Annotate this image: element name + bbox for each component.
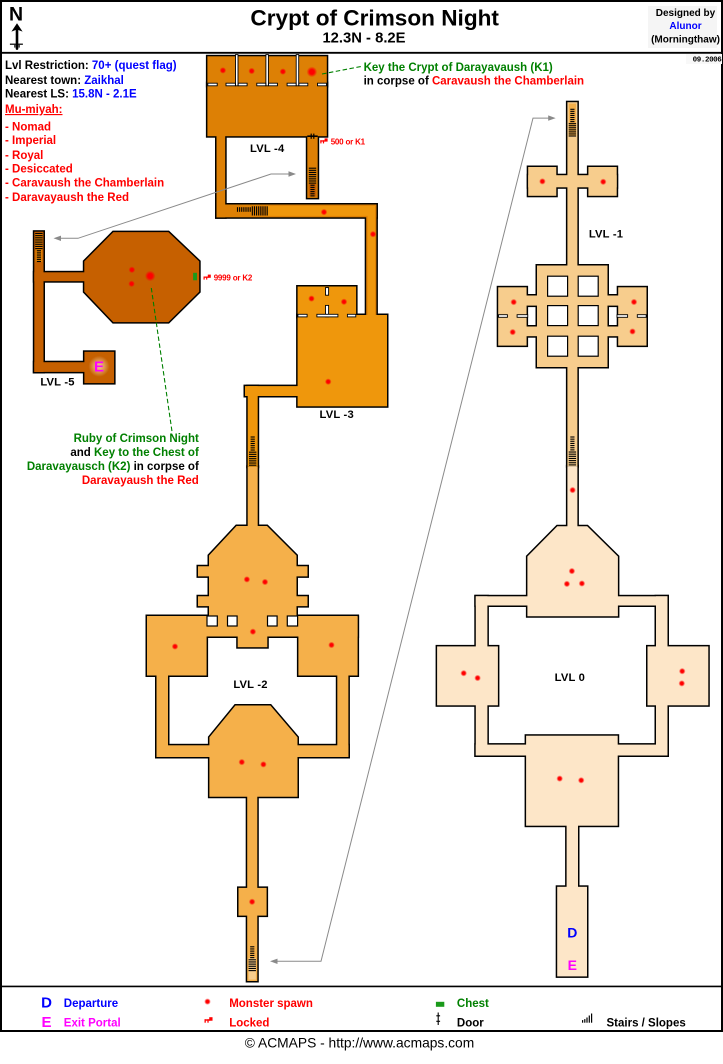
svg-text:- Desiccated: - Desiccated [5, 164, 73, 176]
svg-text:E: E [41, 1014, 51, 1031]
svg-text:Crypt of Crimson Night: Crypt of Crimson Night [250, 5, 499, 30]
svg-text:- Royal: - Royal [5, 150, 43, 162]
svg-text:and Key to the Chest of: and Key to the Chest of [70, 447, 199, 459]
svg-text:Exit Portal: Exit Portal [64, 1017, 121, 1029]
svg-text:LVL -5: LVL -5 [40, 377, 74, 389]
svg-text:Departure: Departure [64, 998, 118, 1010]
svg-text:- Nomad: - Nomad [5, 121, 51, 133]
svg-text:12.3N - 8.2E: 12.3N - 8.2E [322, 31, 405, 47]
svg-text:09.2006: 09.2006 [693, 57, 723, 65]
svg-text:Monster spawn: Monster spawn [229, 998, 313, 1010]
svg-text:Alunor: Alunor [669, 21, 701, 32]
svg-text:Chest: Chest [457, 998, 489, 1010]
svg-text:LVL -2: LVL -2 [233, 679, 267, 691]
svg-text:Locked: Locked [229, 1017, 269, 1029]
svg-text:LVL -4: LVL -4 [250, 143, 285, 155]
svg-text:D: D [41, 994, 52, 1011]
svg-text:Lvl Restriction: 70+ (quest f: Lvl Restriction: 70+ (quest flag) [5, 60, 177, 72]
svg-text:Daravayaush the Red: Daravayaush the Red [82, 475, 199, 487]
svg-text:Designed by: Designed by [656, 8, 716, 19]
svg-text:Door: Door [457, 1017, 484, 1029]
svg-text:Ruby of Crimson Night: Ruby of Crimson Night [74, 433, 199, 445]
svg-text:500 or K1: 500 or K1 [331, 137, 366, 146]
svg-text:D: D [567, 925, 577, 941]
svg-text:- Daravayaush the Red: - Daravayaush the Red [5, 192, 129, 204]
svg-text:LVL -3: LVL -3 [320, 409, 354, 421]
svg-text:9999 or K2: 9999 or K2 [214, 273, 253, 282]
svg-text:Daravayausch (K2) in corpse of: Daravayausch (K2) in corpse of [27, 461, 199, 473]
svg-text:LVL 0: LVL 0 [555, 672, 585, 684]
svg-text:(Morningthaw): (Morningthaw) [651, 35, 720, 46]
svg-text:- Imperial: - Imperial [5, 135, 56, 147]
svg-text:Nearest LS: 15.8N - 2.1E: Nearest LS: 15.8N - 2.1E [5, 89, 137, 101]
svg-text:LVL -1: LVL -1 [589, 229, 623, 241]
svg-text:E: E [94, 359, 104, 376]
svg-text:- Caravaush the Chamberlain: - Caravaush the Chamberlain [5, 178, 164, 190]
svg-text:in corpse of Caravaush the Cha: in corpse of Caravaush the Chamberlain [364, 76, 584, 88]
svg-text:Key the Crypt of Darayavaush (: Key the Crypt of Darayavaush (K1) [364, 62, 553, 74]
svg-text:N: N [9, 3, 23, 25]
svg-text:E: E [568, 957, 577, 973]
svg-text:Stairs / Slopes: Stairs / Slopes [607, 1017, 686, 1029]
svg-text:© ACMAPS - http://www.acmaps.c: © ACMAPS - http://www.acmaps.com [245, 1036, 474, 1051]
svg-text:Nearest town: Zaikhal: Nearest town: Zaikhal [5, 75, 124, 87]
svg-text:Mu-miyah:: Mu-miyah: [5, 104, 63, 116]
